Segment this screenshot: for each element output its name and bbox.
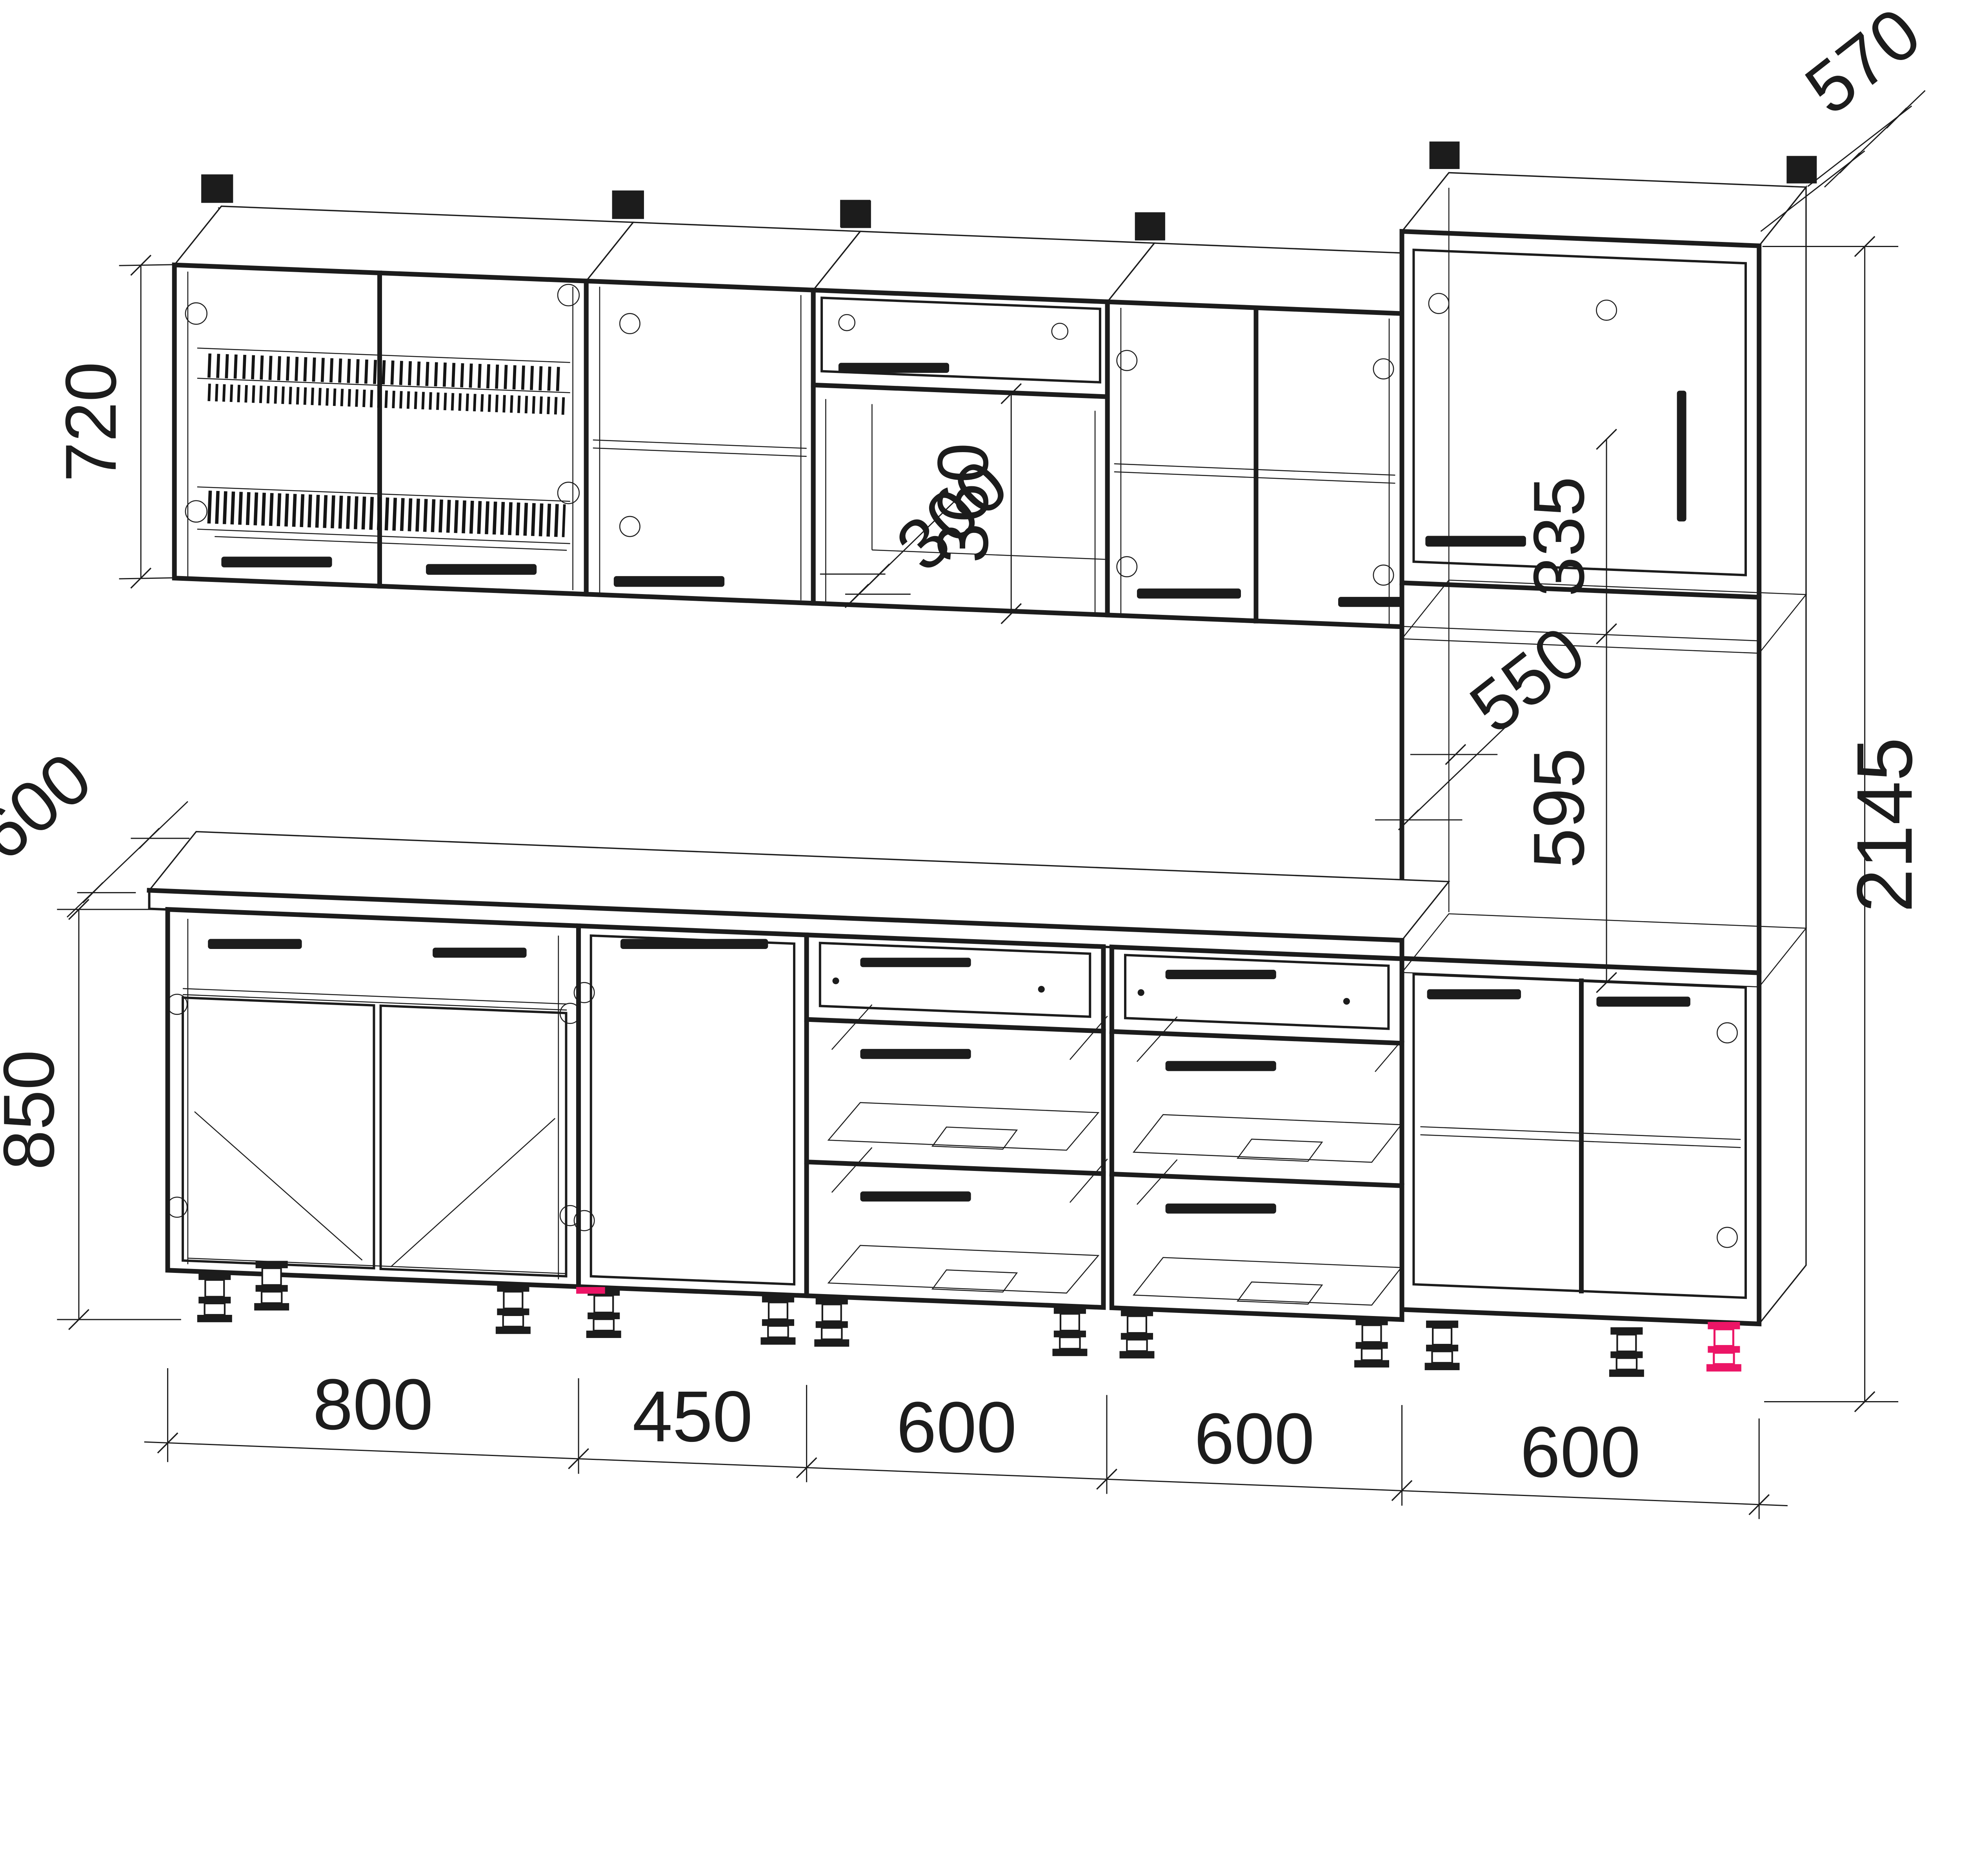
base-cabinet-450 [574,926,807,1345]
dim-base-height: 850 [0,899,181,1329]
drawer-handle [1166,1203,1276,1214]
svg-text:450: 450 [632,1376,753,1456]
svg-text:2145: 2145 [1840,737,1928,913]
vertical-handle [1677,391,1686,522]
drawer-handle [1166,1061,1276,1071]
drawer-handle [860,1049,971,1059]
leveling-foot-icon [1354,1318,1389,1368]
door-handle [1425,536,1526,547]
door-handle [221,557,332,567]
kitchen-cabinet-technical-drawing: 720 300 360 570 335 550 [0,0,1961,1604]
svg-text:360: 360 [922,443,1003,563]
highlighted-foot-icon [1706,1322,1741,1372]
leveling-foot-icon [1609,1327,1644,1377]
screw-dot [832,978,839,984]
svg-text:800: 800 [313,1364,433,1445]
door-handle [208,939,302,949]
svg-text:570: 570 [1791,0,1935,129]
mount-bracket-icon [841,200,871,228]
base-drawer-unit-1 [807,935,1108,1356]
leveling-foot-icon [496,1284,531,1334]
drawer-handle [860,958,971,967]
mount-bracket-icon [614,191,644,218]
door-handle [1137,589,1241,599]
highlighted-part [576,1287,605,1294]
leveling-foot-icon [586,1288,621,1338]
svg-text:600: 600 [896,1387,1017,1467]
door-handle [839,363,949,373]
svg-text:600: 600 [1520,1412,1641,1492]
svg-text:595: 595 [1519,748,1599,869]
drawer-handle [1166,970,1276,979]
leveling-foot-icon [1052,1307,1087,1356]
svg-text:600: 600 [0,737,106,876]
svg-text:600: 600 [1194,1398,1315,1479]
svg-text:850: 850 [0,1050,69,1170]
base-drawer-unit-2 [1112,947,1402,1367]
door-handle [1427,989,1521,1000]
base-cabinet-800 [167,909,580,1334]
door-handle [433,948,526,958]
door-handle [426,564,537,574]
screw-dot [1038,986,1045,993]
dim-width-chain: 800 450 600 600 600 [144,1364,1788,1519]
screw-dot [1138,989,1144,996]
leveling-foot-icon [760,1295,795,1345]
leveling-foot-icon [1425,1321,1460,1371]
wall-cabinet-800-dishrack [175,175,644,594]
mount-bracket-icon [1786,156,1817,184]
door-handle [620,939,768,949]
mount-bracket-icon [201,175,233,203]
kitchen-drawing-page: 720 300 360 570 335 550 [0,0,1961,1604]
drawer-handle [860,1191,971,1202]
leveling-foot-icon [197,1272,232,1322]
mount-bracket-icon [1135,213,1165,240]
screw-dot [1343,998,1350,1005]
svg-text:720: 720 [51,362,131,482]
svg-text:335: 335 [1519,476,1599,597]
door-handle [614,576,724,587]
leveling-foot-icon [814,1297,849,1347]
door-handle [1596,996,1690,1007]
tall-cabinet [1402,142,1817,1377]
mount-bracket-icon [1430,142,1460,169]
leveling-foot-icon [1119,1309,1154,1359]
